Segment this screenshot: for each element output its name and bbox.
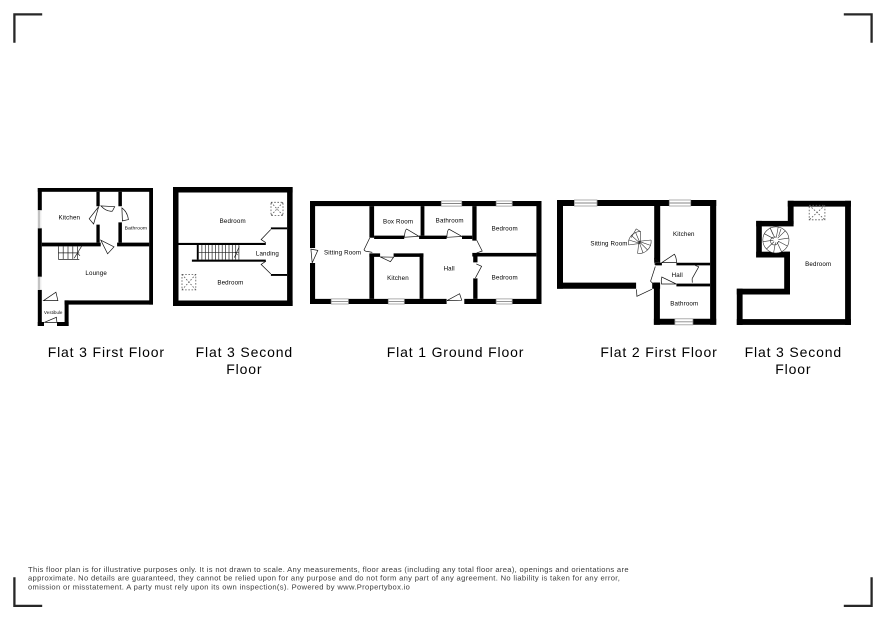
svg-text:Kitchen: Kitchen [58,215,80,222]
svg-text:Flat 3 Second: Flat 3 Second [745,344,842,360]
svg-text:Flat 3 Second: Flat 3 Second [196,344,293,360]
svg-text:This floor plan is for illustr: This floor plan is for illustrative purp… [28,565,629,574]
svg-text:Bathroom: Bathroom [670,301,698,308]
svg-text:Kitchen: Kitchen [673,231,695,238]
svg-text:Box Room: Box Room [383,218,413,225]
svg-text:Floor: Floor [226,361,262,377]
svg-text:Bedroom: Bedroom [217,280,243,287]
svg-text:Bathroom: Bathroom [125,225,147,231]
svg-text:Lounge: Lounge [85,270,107,277]
svg-text:Hall: Hall [672,272,683,279]
svg-text:Kitchen: Kitchen [387,275,409,282]
svg-text:Bedroom: Bedroom [492,226,518,233]
svg-text:Vestibule: Vestibule [44,310,63,315]
svg-text:Bedroom: Bedroom [805,261,831,268]
svg-text:Floor: Floor [775,361,811,377]
svg-text:Bedroom: Bedroom [492,275,518,282]
svg-text:Bathroom: Bathroom [436,218,464,225]
svg-text:Bedroom: Bedroom [220,218,246,225]
svg-text:omission or misstatement. A pa: omission or misstatement. A party must r… [28,582,410,591]
svg-text:Flat 2 First Floor: Flat 2 First Floor [600,344,717,360]
svg-text:Flat 1 Ground Floor: Flat 1 Ground Floor [387,344,525,360]
svg-text:Sitting Room: Sitting Room [324,249,361,256]
svg-text:Hall: Hall [444,266,455,273]
svg-text:Landing: Landing [256,250,279,257]
svg-text:Flat 3 First Floor: Flat 3 First Floor [48,344,165,360]
svg-text:approximate. No details are gu: approximate. No details are guaranteed, … [28,574,620,583]
svg-text:Sitting Room: Sitting Room [590,241,627,248]
